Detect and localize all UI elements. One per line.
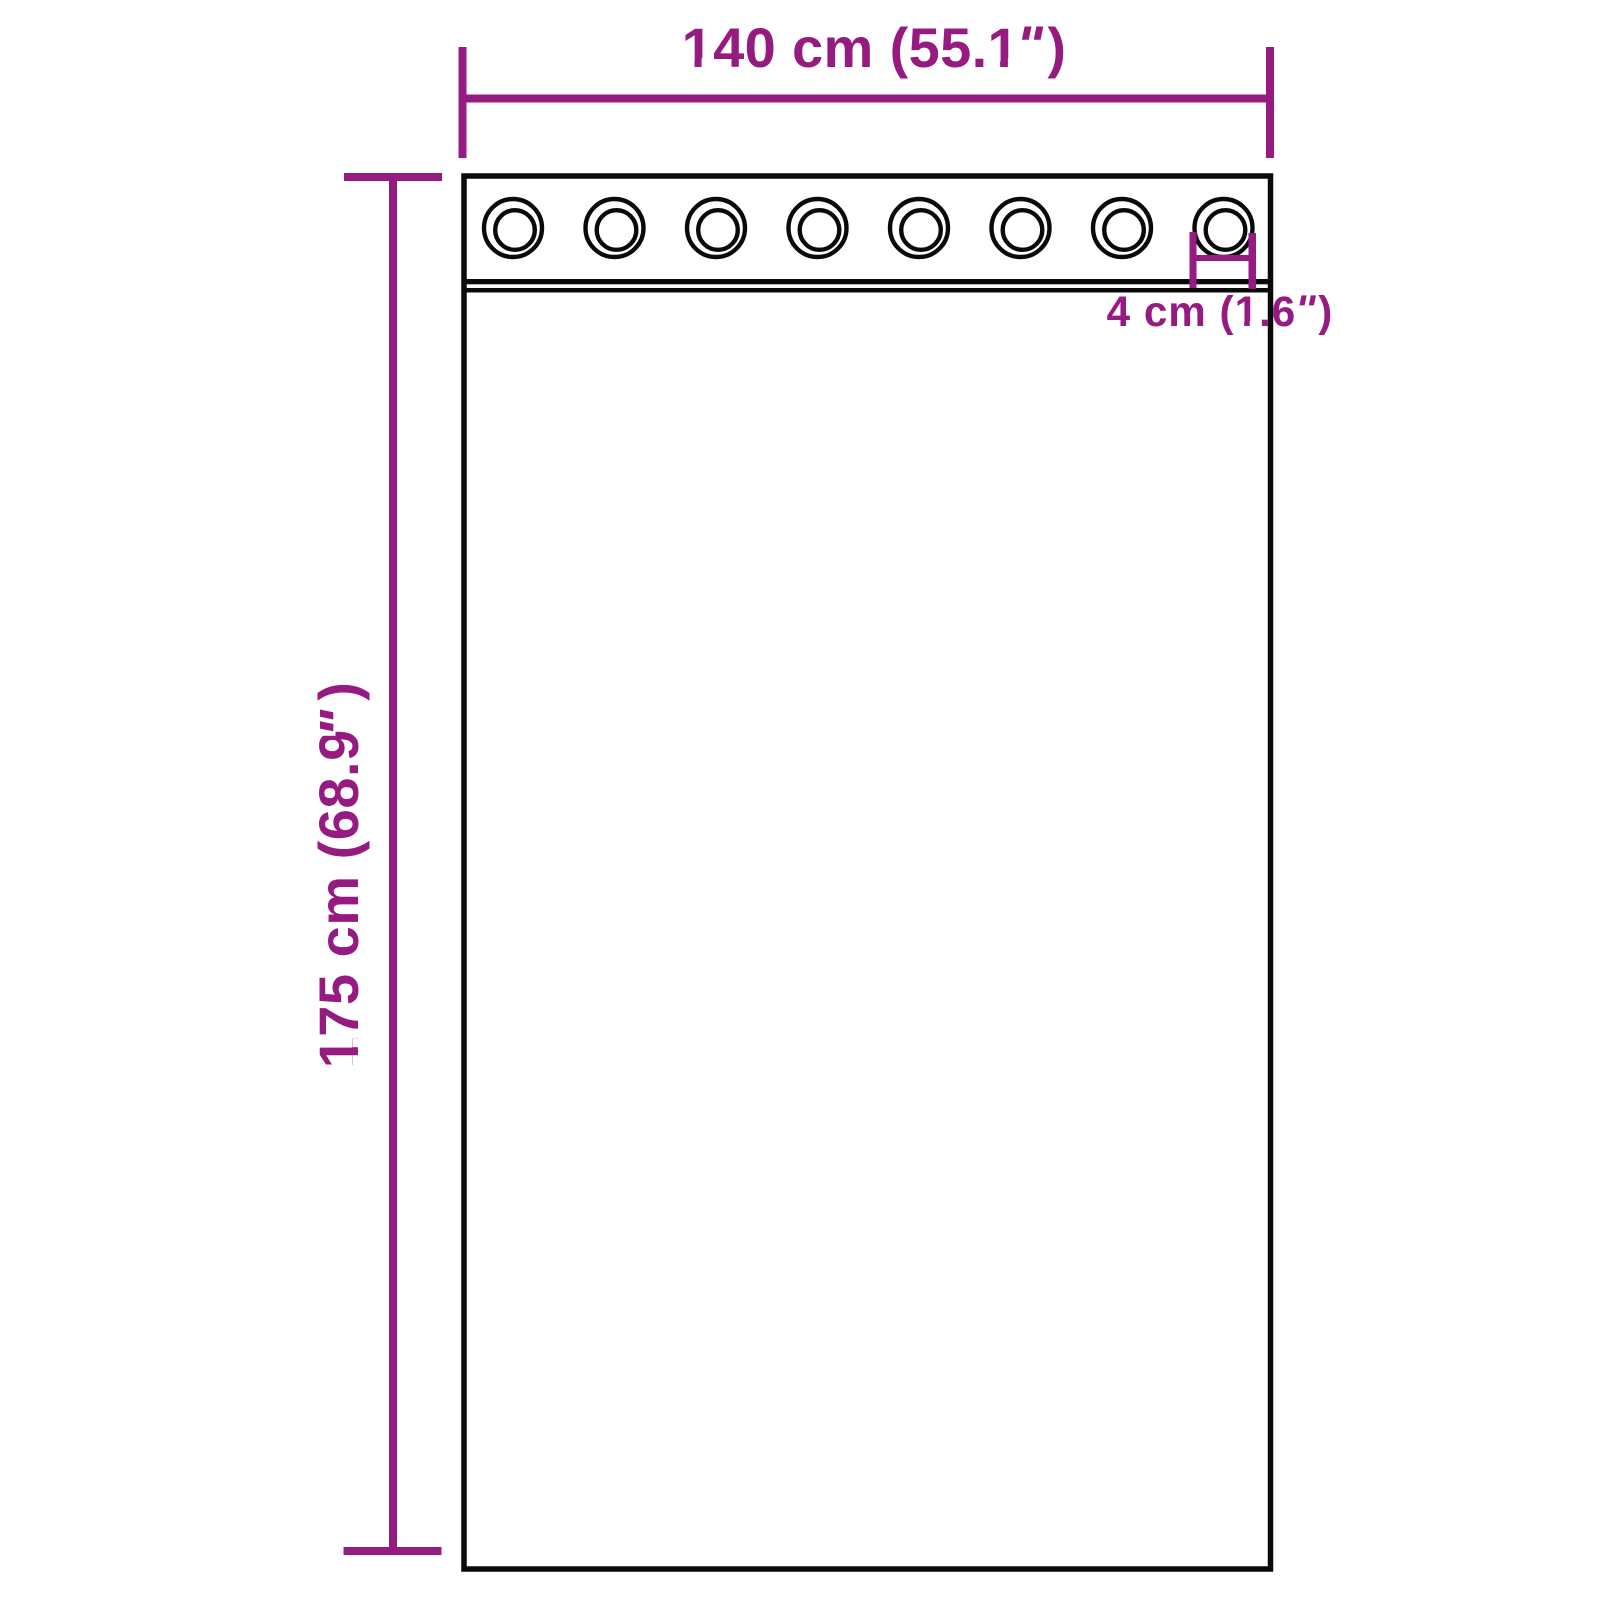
svg-text:175 cm (68.9”): 175 cm (68.9”): [307, 682, 370, 1069]
svg-text:140 cm (55.1”): 140 cm (55.1”): [682, 16, 1067, 79]
